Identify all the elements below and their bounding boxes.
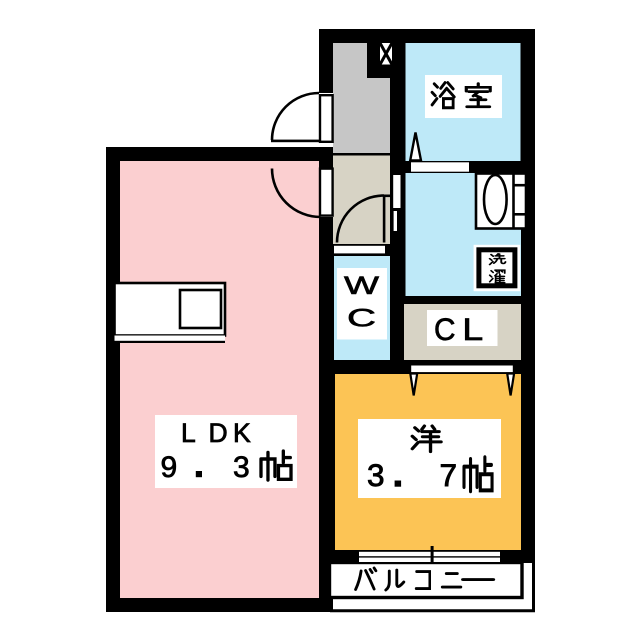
svg-text:W: W (344, 272, 380, 300)
svg-text:3: 3 (367, 457, 385, 493)
svg-text:C: C (347, 304, 376, 332)
svg-text:3: 3 (233, 451, 250, 484)
svg-text:L: L (462, 311, 483, 347)
svg-text:9: 9 (161, 451, 178, 484)
svg-text:C: C (434, 311, 456, 347)
svg-text:7: 7 (440, 457, 458, 493)
svg-text:LDK: LDK (181, 418, 251, 448)
